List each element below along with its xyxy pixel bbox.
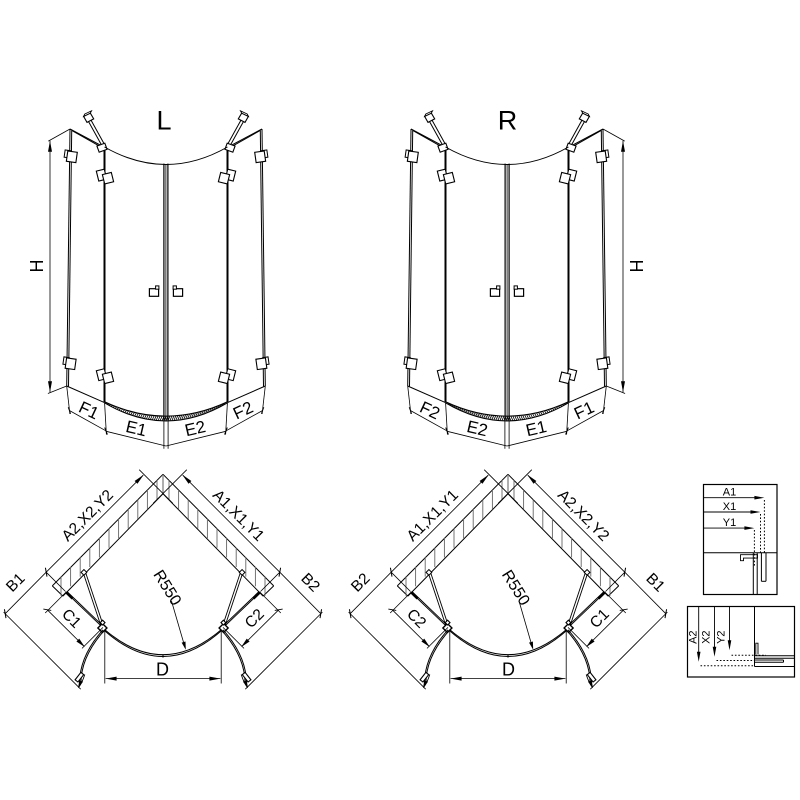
svg-text:A1: A1 bbox=[723, 487, 736, 499]
svg-text:H: H bbox=[626, 260, 646, 273]
svg-text:D: D bbox=[502, 660, 515, 680]
svg-text:A2: A2 bbox=[688, 630, 700, 643]
svg-text:X2: X2 bbox=[701, 630, 713, 643]
svg-text:X1: X1 bbox=[723, 501, 736, 513]
svg-text:L: L bbox=[156, 106, 171, 136]
svg-text:Y1: Y1 bbox=[723, 517, 736, 529]
svg-text:Y2: Y2 bbox=[716, 630, 728, 643]
svg-text:H: H bbox=[27, 260, 47, 273]
svg-text:R: R bbox=[498, 106, 518, 136]
svg-text:D: D bbox=[156, 660, 169, 680]
